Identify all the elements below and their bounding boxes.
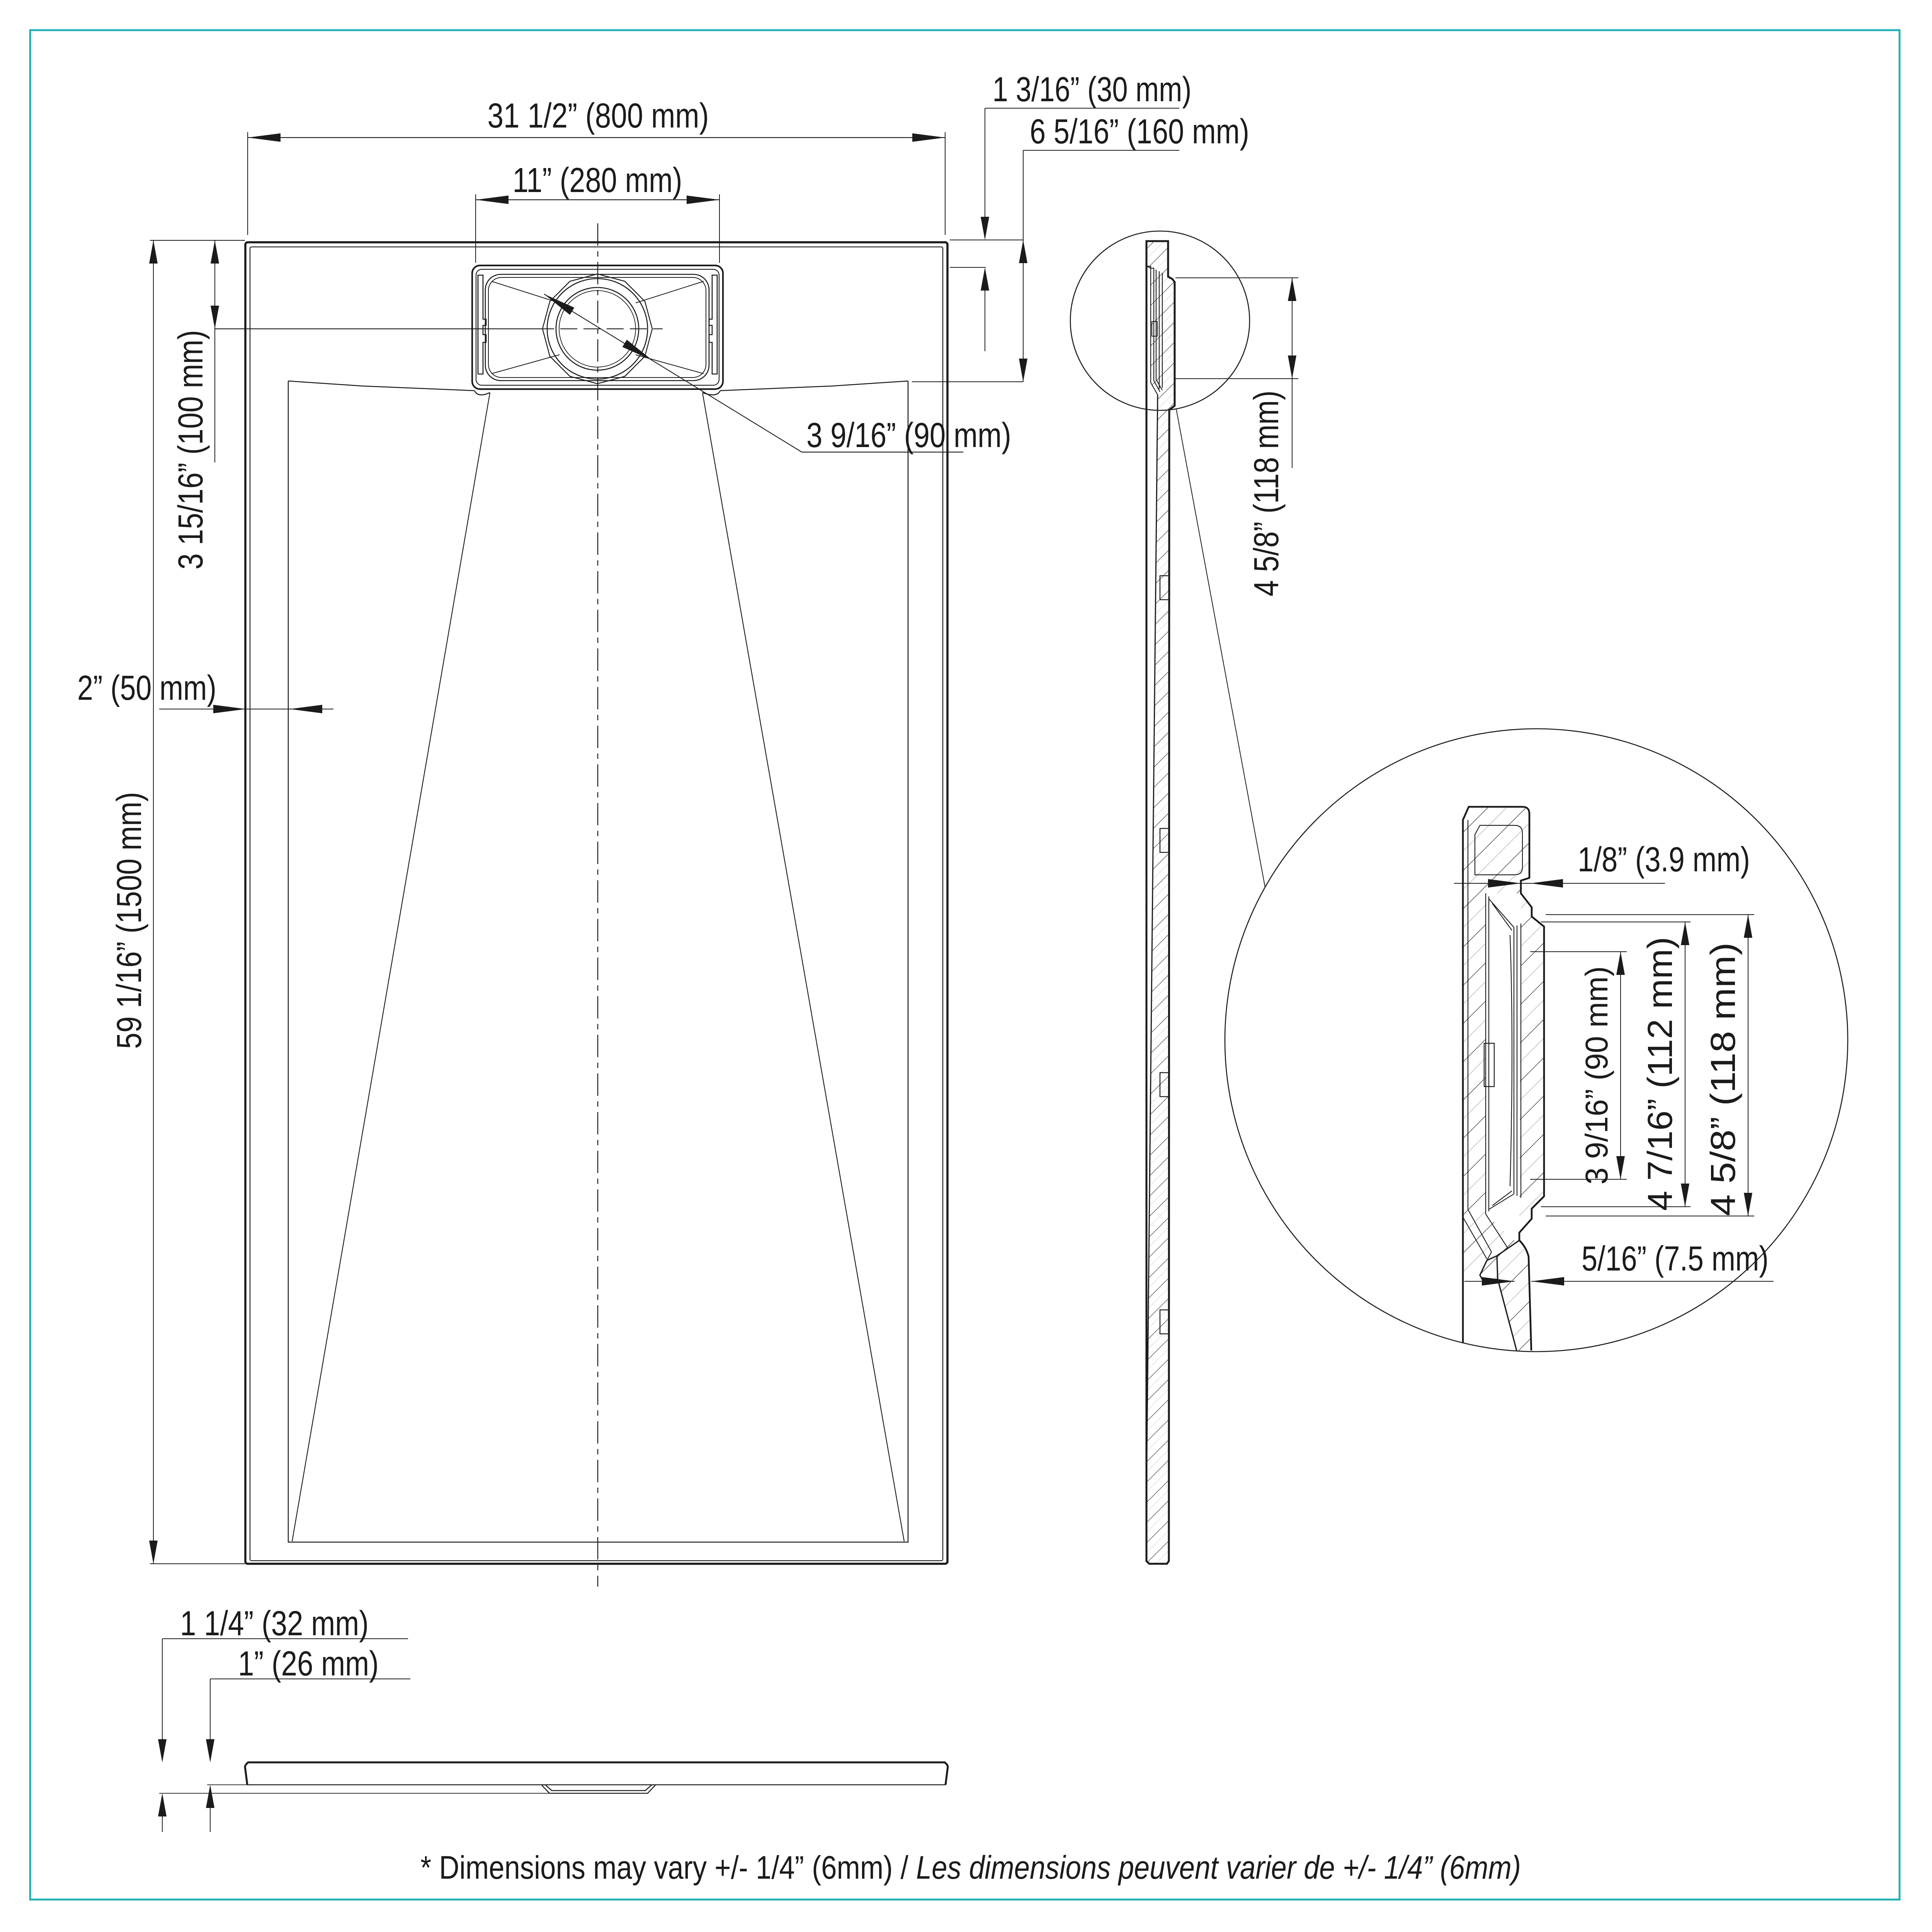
svg-text:1 1/4” (32 mm): 1 1/4” (32 mm) — [180, 1604, 369, 1643]
svg-text:31 1/2” (800 mm): 31 1/2” (800 mm) — [488, 97, 709, 135]
svg-text:11” (280 mm): 11” (280 mm) — [513, 161, 682, 200]
svg-text:2” (50 mm): 2” (50 mm) — [77, 669, 216, 707]
svg-text:3 9/16” (90 mm): 3 9/16” (90 mm) — [806, 416, 1011, 455]
svg-text:4 5/8” (118 mm): 4 5/8” (118 mm) — [1247, 391, 1286, 597]
svg-text:1/8” (3.9 mm): 1/8” (3.9 mm) — [1578, 840, 1750, 879]
svg-text:4 5/8” (118 mm): 4 5/8” (118 mm) — [1704, 942, 1743, 1216]
svg-text:1 3/16” (30 mm): 1 3/16” (30 mm) — [993, 70, 1192, 109]
svg-text:1” (26 mm): 1” (26 mm) — [238, 1645, 379, 1683]
svg-text:6 5/16” (160 mm): 6 5/16” (160 mm) — [1030, 112, 1249, 151]
svg-text:59 1/16” (1500 mm): 59 1/16” (1500 mm) — [110, 792, 149, 1049]
svg-text:3 9/16” (90 mm): 3 9/16” (90 mm) — [1579, 966, 1614, 1185]
svg-text:* Dimensions may vary +/- 1/4”: * Dimensions may vary +/- 1/4” (6mm) / L… — [420, 1849, 1521, 1886]
svg-text:5/16” (7.5 mm): 5/16” (7.5 mm) — [1582, 1240, 1769, 1278]
svg-text:3 15/16” (100 mm): 3 15/16” (100 mm) — [172, 330, 210, 570]
svg-text:4 7/16” (112 mm): 4 7/16” (112 mm) — [1641, 937, 1680, 1211]
